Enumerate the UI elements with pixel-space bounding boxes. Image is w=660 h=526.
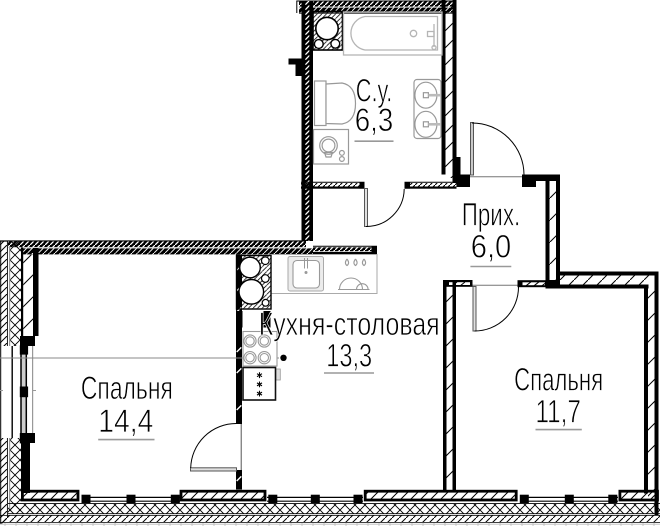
- svg-text:Прих.: Прих.: [462, 197, 521, 233]
- svg-text:6,0: 6,0: [471, 228, 512, 264]
- svg-text:13,3: 13,3: [326, 337, 372, 373]
- svg-text:14,4: 14,4: [98, 403, 153, 439]
- svg-text:6,3: 6,3: [355, 102, 394, 138]
- svg-text:Спальня: Спальня: [81, 370, 173, 406]
- svg-text:11,7: 11,7: [535, 393, 581, 429]
- svg-text:Спальня: Спальня: [514, 362, 603, 398]
